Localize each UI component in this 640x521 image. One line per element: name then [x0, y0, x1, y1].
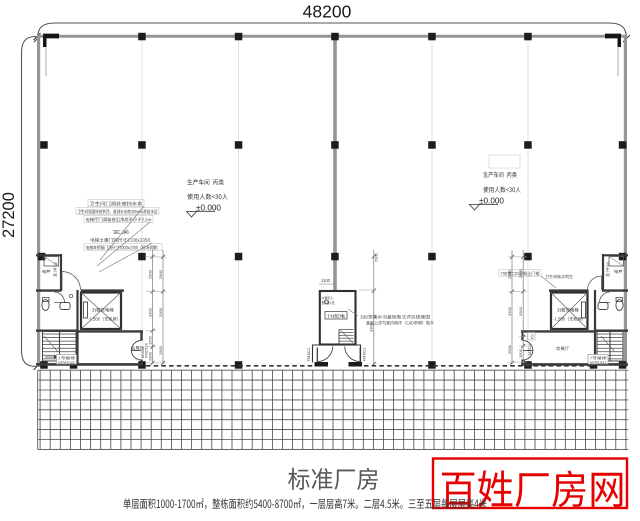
svg-text:27200: 27200	[0, 192, 18, 238]
svg-text:M1520: M1520	[141, 347, 145, 358]
svg-text:2900: 2900	[507, 344, 512, 354]
svg-text:7500: 7500	[140, 333, 144, 341]
svg-text:3300: 3300	[507, 306, 512, 316]
svg-text:2900: 2900	[518, 268, 523, 278]
svg-text:700: 700	[531, 334, 535, 340]
svg-text:2900: 2900	[507, 269, 512, 279]
svg-text:48200: 48200	[303, 2, 352, 22]
svg-text:1500: 1500	[518, 348, 523, 358]
svg-text:2900: 2900	[158, 345, 163, 355]
svg-text:2900: 2900	[158, 269, 163, 279]
svg-text:2900: 2900	[147, 351, 152, 361]
svg-text:2900: 2900	[374, 252, 379, 262]
svg-text:1100: 1100	[321, 278, 331, 283]
svg-text:M1524: M1524	[528, 344, 532, 355]
svg-text:FM1021: FM1021	[363, 348, 367, 361]
svg-text:3300: 3300	[147, 307, 152, 317]
svg-text:1500: 1500	[147, 335, 152, 345]
svg-text:3300: 3300	[158, 307, 163, 317]
svg-text:2900: 2900	[147, 269, 152, 279]
svg-text:FM1021: FM1021	[307, 348, 311, 361]
svg-text:3300: 3300	[518, 306, 523, 316]
